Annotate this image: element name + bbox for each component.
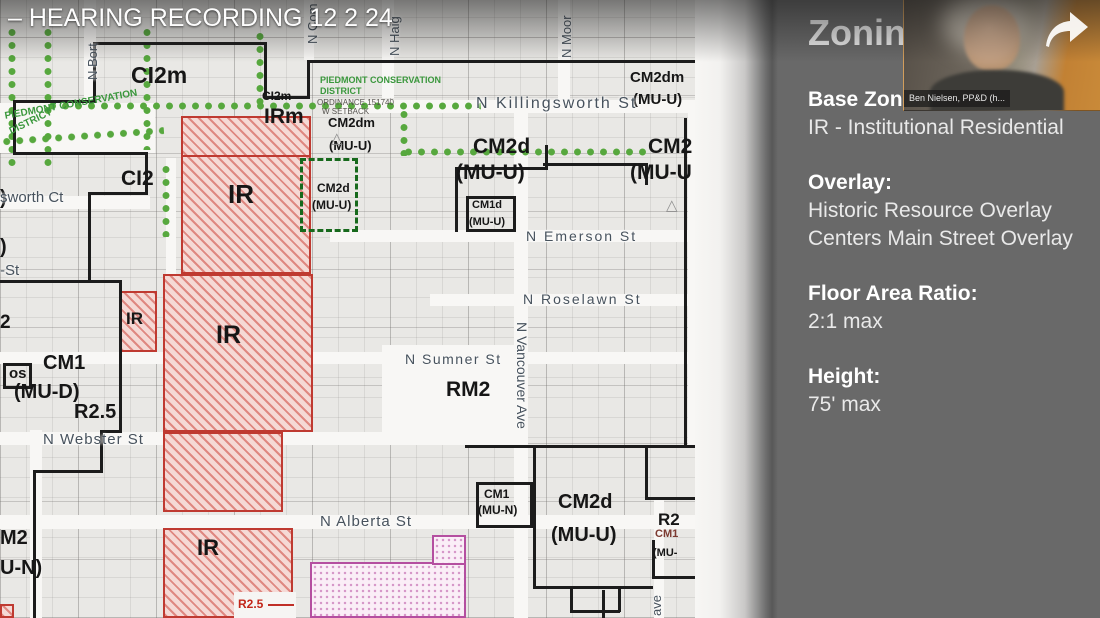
zone-label: 2 [0,313,11,332]
zone-boundary [533,447,536,588]
street-label: -St [0,263,19,278]
zone-label: CM1 [484,488,509,500]
zone-boundary [33,470,103,473]
street-label: N Vancouver Ave [515,322,529,429]
zone-label: RM2 [446,379,490,400]
district-label: DISTRICT [320,87,362,96]
zone-label: U-N) [0,558,42,578]
zone-label: IR [197,537,219,559]
zone-label: IR [126,310,143,327]
street-label: N Emerson St [526,229,637,243]
zone-boundary [88,192,91,283]
street-label: N Webster St [43,432,144,447]
street-band [30,430,42,618]
district-dotted-line [162,163,170,237]
zone-boundary [13,152,148,155]
zone-label: CM1 [43,353,85,373]
zone-boundary [652,540,655,578]
height-value: 75' max [808,391,1084,419]
zone-boundary [570,610,620,613]
zone-boundary [307,60,310,99]
zone-boundary [618,586,621,612]
zone-label: IRm [264,106,304,127]
video-title[interactable]: – HEARING RECORDING 12 2 24 [8,4,393,33]
street-label: ave [650,595,663,616]
zone-label: M2 [0,528,28,548]
zone-label: CM2 [648,136,692,157]
overlay-value-1: Historic Resource Overlay [808,197,1084,225]
zone-label: (MU-D) [14,382,80,402]
street-label: N Bort [86,43,99,80]
ir-zone [0,604,14,618]
triangle-marker: △ [331,131,343,146]
zone-label: CI2m [262,90,291,102]
zone-boundary [545,145,548,170]
slide-edge-gradient [695,0,778,618]
zone-boundary [652,576,695,579]
zone-boundary [602,590,605,618]
share-arrow-icon[interactable] [1042,10,1090,50]
zone-label: os [9,366,27,381]
zone-boundary [88,192,148,195]
zone-label: CM1d [472,200,502,211]
zone-label: R2.5 [74,402,116,422]
zone-label: CI2m [131,64,187,87]
zone-boundary [645,445,648,500]
zone-boundary [570,586,573,612]
speaker-head [964,5,1020,71]
district-dotted-line [44,26,52,168]
zone-boundary [33,470,36,618]
zone-label: (MU-U) [456,162,525,183]
zone-line [268,604,294,606]
zone-boundary [93,42,267,45]
zone-label: (MU-U) [469,217,505,228]
zone-boundary [645,497,695,500]
ordinance-note: W SETBACK [322,108,369,116]
ir-zone [163,274,313,432]
zone-boundary [119,280,122,433]
far-value: 2:1 max [808,308,1084,336]
ir-zone [163,432,283,512]
zone-label: (MU- [653,548,677,559]
zone-label: IR [216,323,241,348]
zone-label: (MU-U) [551,525,617,545]
zone-label: (MU-U) [312,199,351,211]
zone-boundary [465,445,695,448]
overlay-section: Overlay: Historic Resource Overlay Cente… [808,169,1084,253]
zone-boundary [0,280,122,283]
conservation-dashed-box [300,158,358,232]
zone-label: IR [228,181,254,207]
zone-label: (MU-U) [633,92,682,107]
historic-zone [432,535,466,565]
street-label: sworth Ct [0,190,63,205]
far-section: Floor Area Ratio: 2:1 max [808,280,1084,336]
overlay-heading: Overlay: [808,169,1084,197]
street-band [0,352,688,364]
zone-label: CM2d [558,492,612,512]
street-label: N Moor [560,15,573,58]
speaker-name-badge: Ben Nielsen, PP&D (h... [904,90,1010,107]
zone-boundary [307,60,695,63]
street-label: N Alberta St [320,514,412,529]
far-heading: Floor Area Ratio: [808,280,1084,308]
street-label: N Sumner St [405,352,502,366]
zone-label: CM1 [655,529,678,540]
ordinance-note: ORDINANCE 151740 [317,99,394,107]
zone-label: (MU-N) [478,504,517,516]
triangle-marker: △ [666,198,678,213]
zone-label: CM2dm [328,116,375,129]
historic-zone [310,562,466,618]
overlay-value-2: Centers Main Street Overlay [808,225,1084,253]
zone-boundary [533,586,653,589]
video-player[interactable]: CI2mCI2mIRmIRCI2CM2dm(MU-U)CM2dm(MU-U)CM… [0,0,1100,618]
district-label: PIEDMONT CONSERVATION [320,76,441,85]
zoning-map: CI2mCI2mIRmIRCI2CM2dm(MU-U)CM2dm(MU-U)CM… [0,0,695,618]
zone-line [181,155,311,157]
height-heading: Height: [808,363,1084,391]
zone-label: ) [0,237,7,257]
height-section: Height: 75' max [808,363,1084,419]
zone-label: CI2 [121,168,154,189]
zone-label: R2.5 [238,598,263,610]
base-zone-value: IR - Institutional Residential [808,114,1084,142]
street-label: N Roselawn St [523,292,642,306]
zone-label: CM2dm [630,70,684,85]
zone-label: CM2d [473,136,530,157]
zone-label: (MU-U [630,162,692,183]
street-label: N Killingsworth St [476,96,637,112]
zone-label: R2 [658,511,680,528]
zone-label: CM2d [317,182,350,194]
